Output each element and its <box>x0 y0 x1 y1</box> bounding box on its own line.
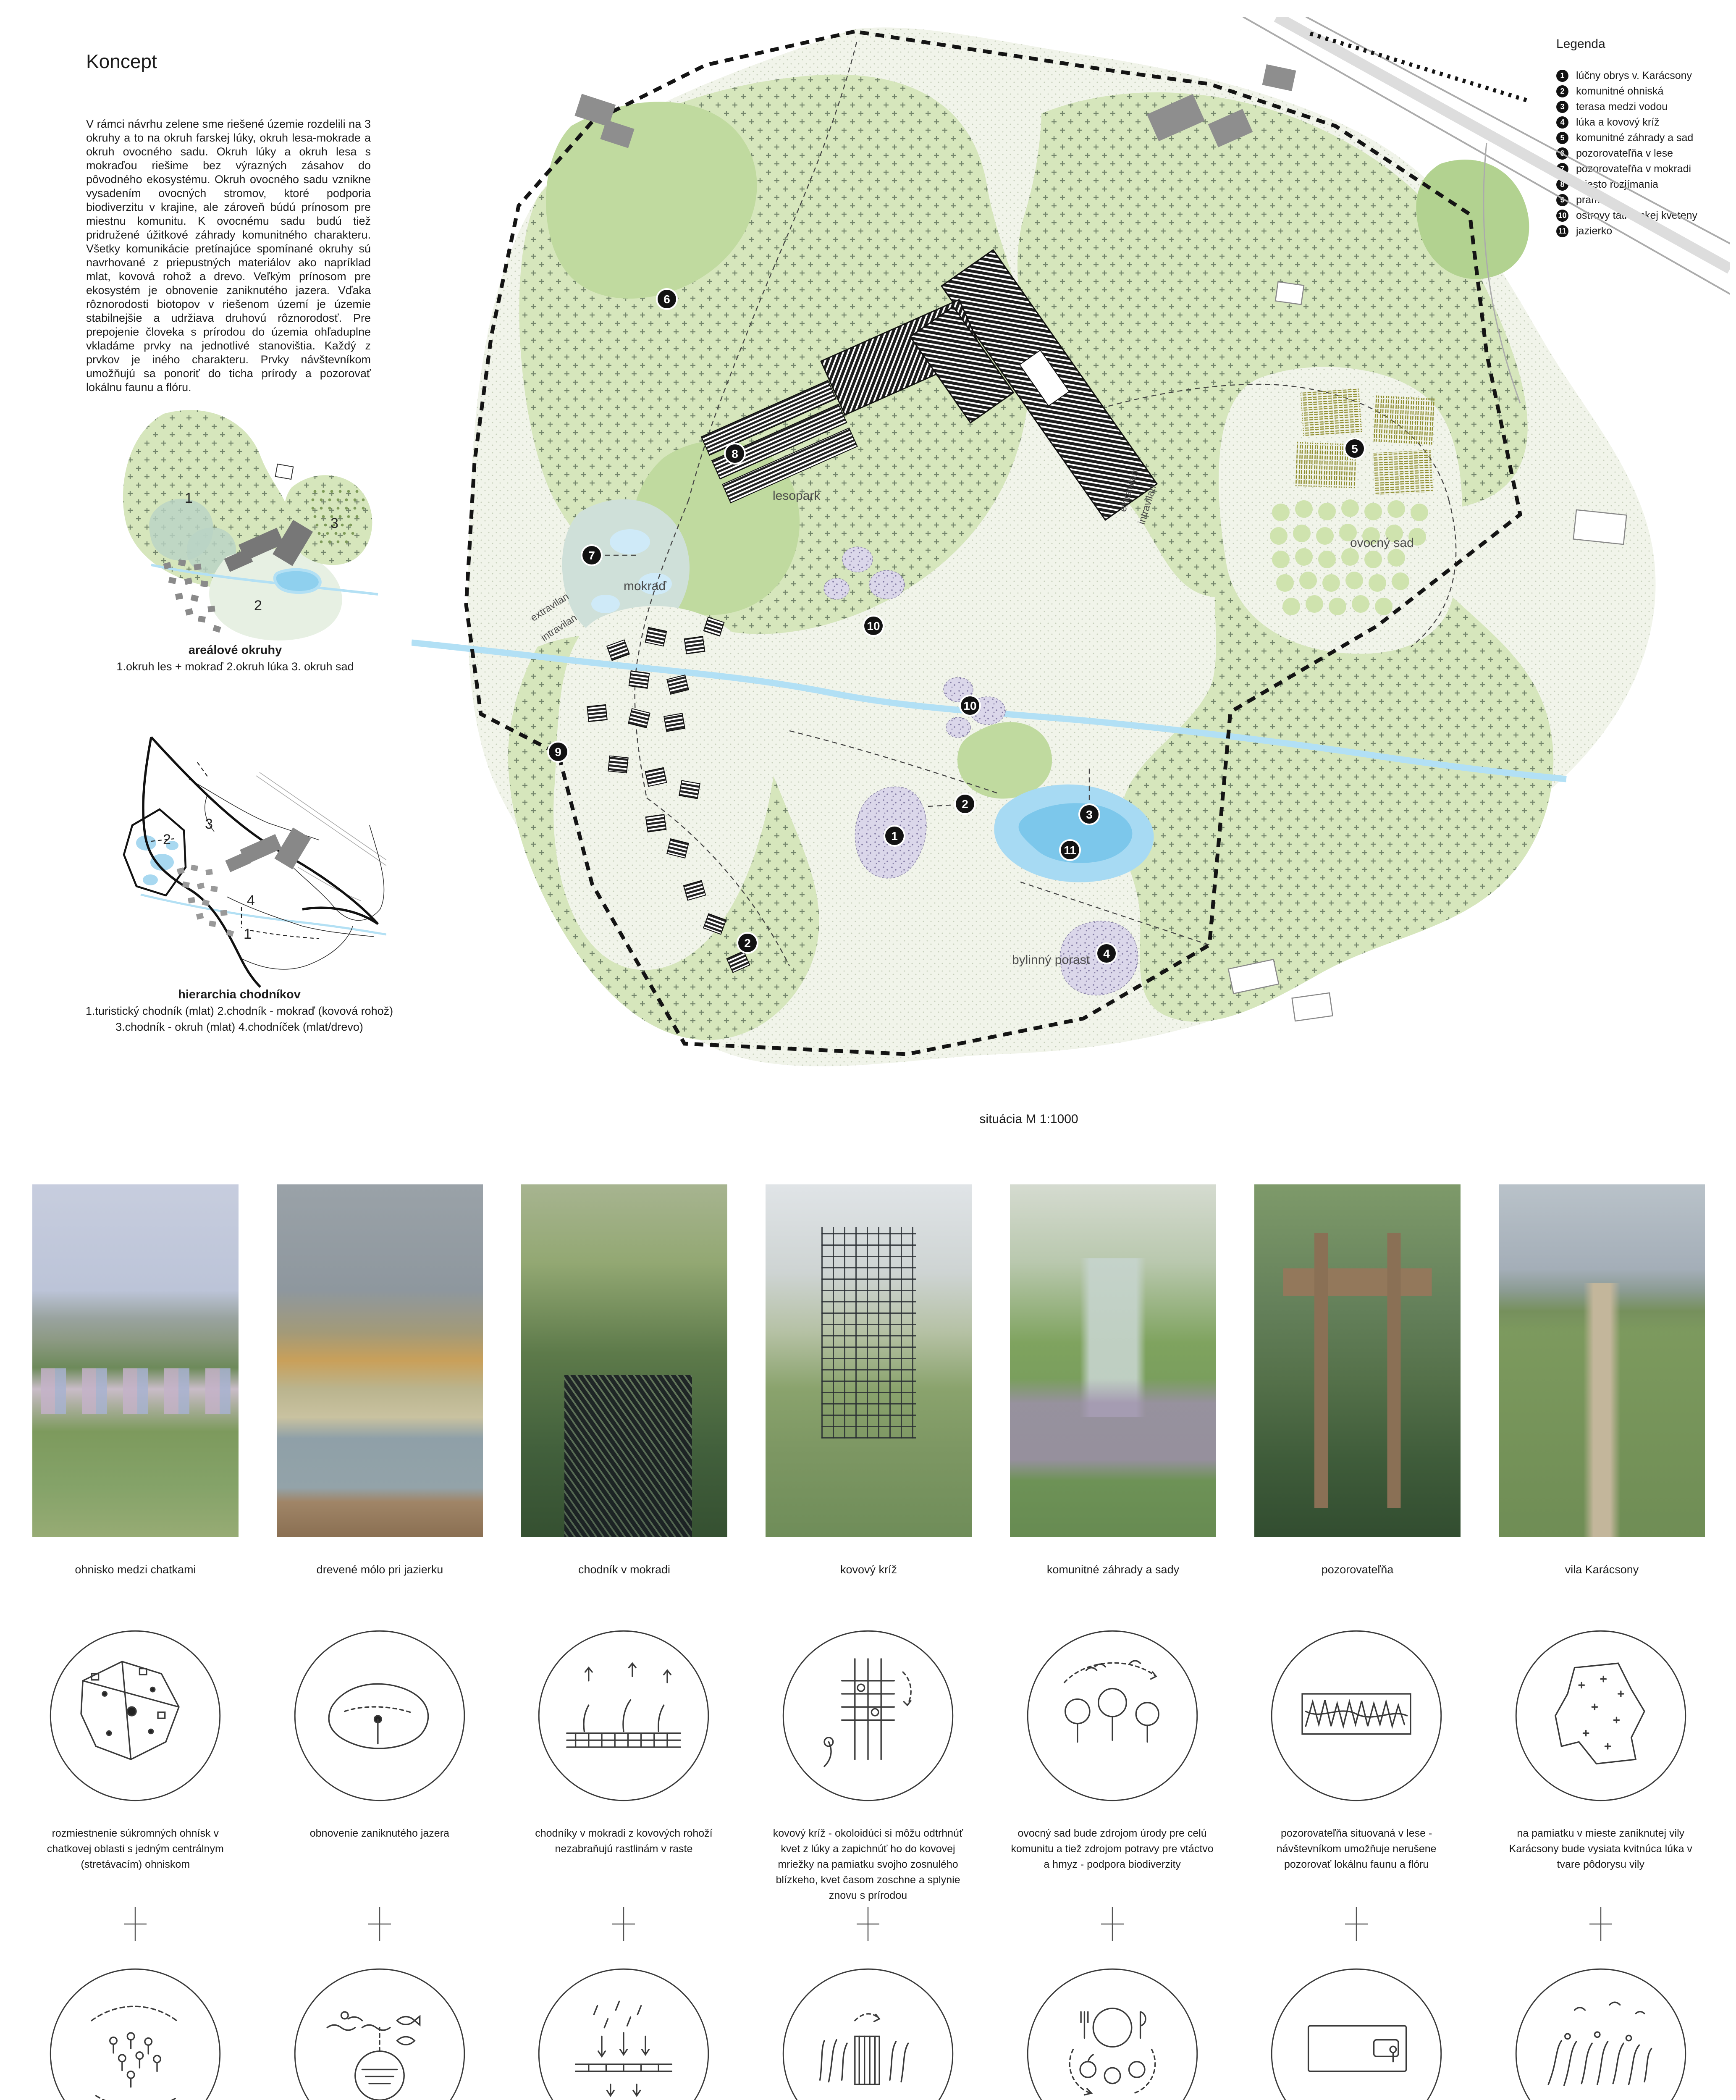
diagram1-subtitle: 1.okruh les + mokraď 2.okruh lúka 3. okr… <box>88 660 382 673</box>
concept-caption: ovocný sad bude zdrojom úrody pre celú k… <box>1010 1826 1215 1872</box>
diagram2-subtitle-line2: 3.chodník - okruh (mlat) 4.chodníček (ml… <box>71 1020 407 1034</box>
concept-sketch-contemplation_frame <box>1269 1966 1444 2100</box>
photo-card: ohnisko medzi chatkami <box>32 1184 239 1576</box>
plus-divider-icon <box>765 1905 971 1943</box>
map-marker-5: 5 <box>1344 438 1366 459</box>
photo-caption: chodník v mokradi <box>521 1563 727 1576</box>
d2-stream <box>141 895 386 934</box>
map-area-label: bylinný porast <box>1012 953 1090 967</box>
concept-caption: pozorovateľňa situovaná v lese - návštev… <box>1254 1826 1459 1872</box>
map-wetland-pool <box>610 529 650 554</box>
photo-card: chodník v mokradi <box>521 1184 727 1576</box>
concept-caption: chodníky v mokradi z kovových rohoží nez… <box>521 1826 726 1857</box>
plus-divider-icon <box>521 1905 727 1943</box>
photo-caption: kovový kríž <box>766 1563 972 1576</box>
photo-caption: pozorovateľňa <box>1254 1563 1461 1576</box>
map-marker-11: 11 <box>1059 839 1081 861</box>
concept-card: kovový kríž - okoloidúci si môžu odtrhnú… <box>765 1628 971 1903</box>
diagram2-caption: hierarchia chodníkov 1.turistický chodní… <box>71 988 407 1034</box>
concept-caption: rozmiestnenie súkromných ohnísk v chatko… <box>33 1826 238 1872</box>
concept-card: obnovenie zaniknutého jazera <box>277 1628 483 1903</box>
map-marker-number: 10 <box>867 619 880 633</box>
concept-card: miesto vhodné pre stretávanie lokálnej k… <box>32 1966 239 2100</box>
concept-card: vďaka priepustnosti netvoria bariéru pre… <box>521 1966 727 2100</box>
concept-sketch-orchard_birds <box>1025 1628 1200 1803</box>
concept-card: doplnenie o drevené plošiny (móla) možno… <box>277 1966 483 2100</box>
map-scale-caption: situácia M 1:1000 <box>903 1112 1155 1126</box>
map-marker-number: 4 <box>1103 947 1110 960</box>
d2-cottages <box>177 865 234 937</box>
map-marker-9: 9 <box>547 741 569 763</box>
concept-caption: kovový kríž - okoloidúci si môžu odtrhnú… <box>766 1826 970 1903</box>
map-marker-number: 2 <box>962 798 968 811</box>
concept-row-1: rozmiestnenie súkromných ohnísk v chatko… <box>32 1628 1704 1903</box>
map-marker-1: 1 <box>884 825 905 847</box>
photo-caption: komunitné záhrady a sady <box>1010 1563 1216 1576</box>
map-marker-number: 6 <box>663 293 670 306</box>
d1-area-number: 2 <box>254 598 262 614</box>
map-marker-2: 2 <box>954 793 976 815</box>
d2-buildings <box>225 827 311 872</box>
d2-area-number: 4 <box>247 892 255 908</box>
d1-lake <box>275 570 320 592</box>
concept-sketch-lake_restore <box>292 1628 467 1803</box>
plus-divider-icon <box>1497 1905 1704 1943</box>
map-marker-number: 9 <box>555 745 561 759</box>
concept-sketch-meadow_insects <box>1513 1966 1688 2100</box>
map-marker-4: 4 <box>1096 942 1117 964</box>
d1-villa-outline <box>275 464 294 479</box>
map-wetland-pool <box>591 595 620 613</box>
concept-sketch-walkway_grating <box>536 1628 711 1803</box>
map-marker-number: 11 <box>1064 844 1076 857</box>
photo-image <box>521 1184 727 1537</box>
concept-sketch-community_people <box>48 1966 223 2100</box>
d2-area-number: 1 <box>244 926 252 942</box>
concept-row-2: miesto vhodné pre stretávanie lokálnej k… <box>32 1966 1704 2100</box>
path-hierarchy-diagram: 1234 <box>101 729 386 989</box>
concept-paragraph: V rámci návrhu zelene sme riešené územie… <box>86 117 371 394</box>
d1-area-number: 1 <box>185 490 193 506</box>
page-title: Koncept <box>86 50 157 73</box>
photo-caption: vila Karácsony <box>1499 1563 1705 1576</box>
map-marker-number: 8 <box>732 447 738 460</box>
d2-thin-paths <box>189 779 384 969</box>
concept-card: kvitnúca lúka - vhodná pre užitočný hmyz… <box>1497 1966 1704 2100</box>
map-marker-number: 3 <box>1086 808 1093 821</box>
concept-card: ovocný sad bude zdrojom úrody pre celú k… <box>1009 1628 1215 1903</box>
concept-sketch-cross_grid <box>781 1628 955 1803</box>
photo-card: komunitné záhrady a sady <box>1010 1184 1216 1576</box>
map-marker-number: 7 <box>588 549 595 562</box>
photo-card: vila Karácsony <box>1499 1184 1705 1576</box>
map-area-label: mokraď <box>624 579 666 593</box>
diagram1-caption: areálové okruhy 1.okruh les + mokraď 2.o… <box>88 643 382 673</box>
area-circuits-diagram: 123 <box>101 397 386 645</box>
photo-caption: ohnisko medzi chatkami <box>32 1563 239 1576</box>
photo-image <box>32 1184 239 1537</box>
photo-image <box>277 1184 483 1537</box>
photo-card: pozorovateľňa <box>1254 1184 1461 1576</box>
map-marker-10: 10 <box>959 695 981 717</box>
concept-sketch-rain_permeable <box>536 1966 711 2100</box>
site-plan-map: lesoparkmokraďovocný sadbylinný porastex… <box>412 17 1730 1100</box>
concept-sketch-grass_grid <box>781 1966 955 2100</box>
concept-sketch-villa_footprint <box>1513 1628 1688 1803</box>
plus-divider-icon <box>1253 1905 1460 1943</box>
plus-divider-row <box>32 1905 1704 1943</box>
map-marker-number: 2 <box>744 937 751 950</box>
map-marker-6: 6 <box>656 288 678 310</box>
concept-sketch-observatory_band <box>1269 1628 1444 1803</box>
map-area-label: ovocný sad <box>1350 536 1414 550</box>
diagram2-subtitle-line1: 1.turistický chodník (mlat) 2.chodník - … <box>71 1004 407 1018</box>
photo-row: ohnisko medzi chatkamidrevené mólo pri j… <box>32 1184 1704 1576</box>
d2-thick-paths <box>143 737 378 987</box>
map-marker-8: 8 <box>724 443 746 465</box>
map-area-label: lesopark <box>773 489 821 503</box>
photo-image <box>766 1184 972 1537</box>
map-marker-number: 5 <box>1351 442 1358 455</box>
photo-card: kovový kríž <box>766 1184 972 1576</box>
plus-divider-icon <box>32 1905 239 1943</box>
photo-image <box>1499 1184 1705 1537</box>
concept-card: pozorovateľňa situovaná v lese - návštev… <box>1253 1628 1460 1903</box>
concept-sketch-food_cycle <box>1025 1966 1200 2100</box>
map-marker-3: 3 <box>1078 803 1100 825</box>
concept-sketch-plan_fireplaces <box>48 1628 223 1803</box>
concept-card: chodníky v mokradi z kovových rohoží nez… <box>521 1628 727 1903</box>
photo-image <box>1010 1184 1216 1537</box>
map-marker-7: 7 <box>581 544 603 566</box>
concept-caption: obnovenie zaniknutého jazera <box>277 1826 482 1841</box>
d2-area-number: 2 <box>163 832 171 848</box>
d1-area-number: 3 <box>330 515 338 531</box>
concept-card: rozmiestnenie súkromných ohnísk v chatko… <box>32 1628 239 1903</box>
concept-sketch-swim_pier <box>292 1966 467 2100</box>
concept-card: symbol kolobehu života - živá rastlina p… <box>765 1966 971 2100</box>
photo-image <box>1254 1184 1461 1537</box>
map-marker-10: 10 <box>863 615 884 637</box>
concept-card: vhodná na rozjímanie <box>1253 1966 1460 2100</box>
map-marker-number: 1 <box>891 829 898 843</box>
map-marker-number: 10 <box>963 699 976 712</box>
photo-caption: drevené mólo pri jazierku <box>277 1563 483 1576</box>
plus-divider-icon <box>1009 1905 1215 1943</box>
d2-area-number: 3 <box>205 816 213 832</box>
plus-divider-icon <box>277 1905 483 1943</box>
diagram2-title: hierarchia chodníkov <box>71 988 407 1002</box>
concept-card: na pamiatku v mieste zaniknutej vily Kar… <box>1497 1628 1704 1903</box>
concept-card: úžitkové záhrady komunitného charakteru <box>1009 1966 1215 2100</box>
concept-caption: na pamiatku v mieste zaniknutej vily Kar… <box>1498 1826 1703 1872</box>
diagram1-title: areálové okruhy <box>88 643 382 657</box>
poster-page: Koncept V rámci návrhu zelene sme riešen… <box>0 0 1736 2100</box>
photo-card: drevené mólo pri jazierku <box>277 1184 483 1576</box>
map-marker-2: 2 <box>737 932 758 954</box>
